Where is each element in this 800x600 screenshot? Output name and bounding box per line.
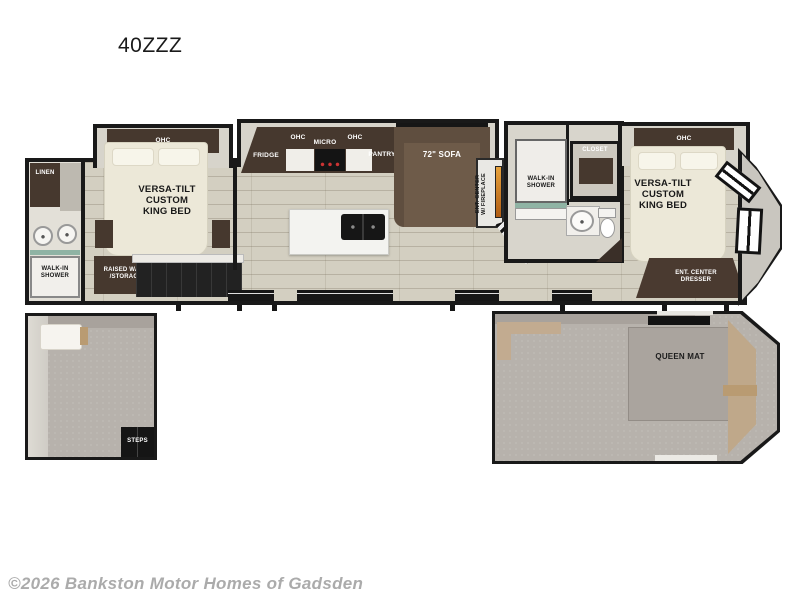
threshold-strip — [655, 455, 717, 461]
queen-mat-label: QUEEN MAT — [630, 352, 730, 361]
loft-mat-edge — [80, 327, 88, 345]
mid-walkin-shower — [515, 139, 567, 203]
closet-shelf — [579, 158, 613, 184]
nightstand — [95, 220, 113, 248]
chassis-foot — [724, 305, 729, 311]
loft-mat — [40, 324, 82, 350]
threshold-strip — [657, 311, 713, 315]
queen-mat — [628, 327, 730, 421]
wall-bedroom-kitchen — [233, 158, 237, 270]
ohc-left-label: OHC — [284, 134, 312, 142]
linen-label: LINEN — [30, 170, 60, 177]
hatch-opening — [648, 316, 710, 325]
chassis-foot — [450, 305, 455, 311]
wood-trim — [723, 385, 757, 396]
steps-label: STEPS — [121, 438, 154, 445]
chassis-foot — [176, 305, 181, 311]
sink-icon — [57, 224, 77, 244]
shower-tray — [515, 208, 567, 220]
chassis-foot — [272, 305, 277, 311]
sink-icon — [570, 210, 594, 232]
closet-label: CLOSET — [572, 147, 618, 154]
dresser-label: ENT. CENTER DRESSER — [656, 270, 736, 284]
cooktop-icon — [315, 149, 345, 171]
entry-opening — [297, 290, 393, 301]
rear-ohc-label: OHC — [634, 135, 734, 143]
nightstand — [212, 220, 230, 248]
counter-edge — [132, 254, 244, 263]
micro-label: MICRO — [310, 139, 340, 147]
fireplace-icon — [495, 166, 502, 218]
entry-opening — [552, 290, 592, 301]
fridge-label: FRIDGE — [244, 152, 288, 160]
island-sink-icon — [341, 214, 385, 240]
chassis-foot — [237, 305, 242, 311]
pillow — [158, 148, 200, 166]
chassis-foot — [560, 305, 565, 311]
toilet-icon — [600, 218, 615, 238]
rear-bed-label: VERSA-TILT CUSTOM KING BED — [613, 178, 713, 212]
shower-glass — [30, 250, 80, 255]
mid-shower-label: WALK-IN SHOWER — [515, 176, 567, 190]
front-shower-label: WALK-IN SHOWER — [30, 266, 80, 280]
entry-opening — [455, 290, 499, 301]
ohc-right-label: OHC — [341, 134, 369, 142]
pillow — [638, 152, 676, 170]
wood-trim — [497, 322, 511, 360]
wall-bath-bedroom — [81, 158, 85, 305]
bath-cabinet — [60, 163, 81, 211]
counter — [286, 149, 314, 171]
sofa-label: 72" SOFA — [404, 150, 480, 159]
front-bed-label: VERSA-TILT CUSTOM KING BED — [107, 184, 227, 218]
page-title: 40ZZZ — [118, 34, 182, 59]
window-icon — [735, 207, 763, 254]
floorplan-page: 40ZZZ LINEN WALK-IN SHOWER OHC VERSA-TIL… — [0, 0, 800, 600]
pillow — [680, 152, 718, 170]
pillow — [112, 148, 154, 166]
entry-opening — [228, 290, 274, 301]
sink-icon — [33, 226, 53, 246]
watermark: ©2026 Bankston Motor Homes of Gadsden — [8, 574, 363, 594]
black-wardrobe — [136, 263, 242, 297]
